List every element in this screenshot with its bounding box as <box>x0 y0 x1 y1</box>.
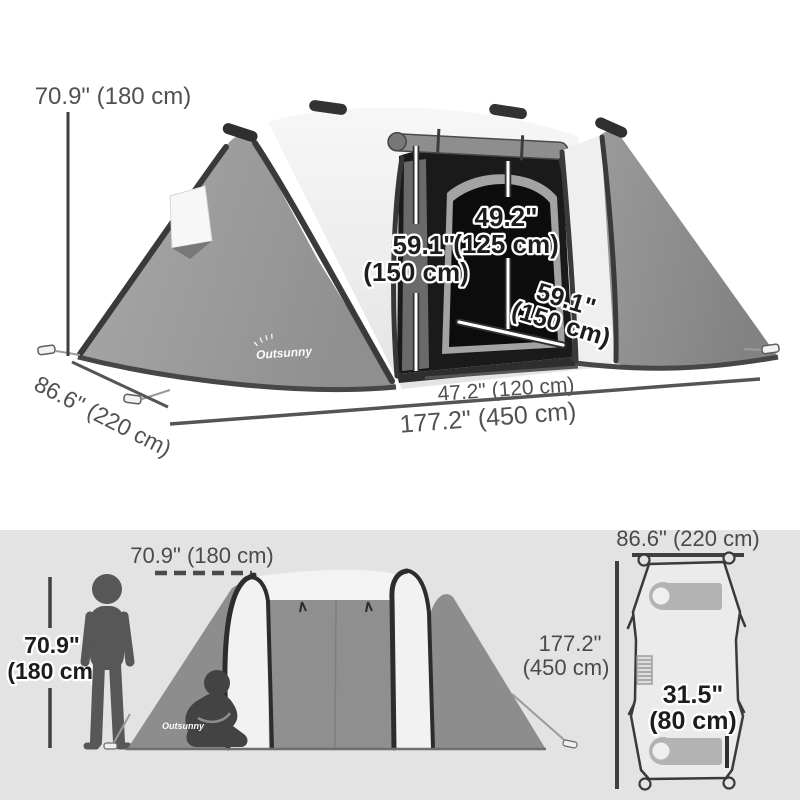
dimension-tent-depth: 86.6" (220 cm) <box>30 362 176 462</box>
room-height-label-cm: (150 cm) <box>363 257 469 287</box>
corner-loop-icon <box>640 779 651 790</box>
vent-flap-icon <box>170 186 212 248</box>
sleeping-bag-icon <box>649 582 722 610</box>
plan-length-label-in: 177.2" <box>539 631 602 656</box>
plan-width-label: 86.6" (220 cm) <box>616 526 760 551</box>
plan-length-label-cm: (450 cm) <box>523 655 610 680</box>
corner-loop-icon <box>724 553 735 564</box>
tent-depth-label: 86.6" (220 cm) <box>30 370 176 461</box>
person-height-label-in: 70.9" <box>24 632 80 658</box>
tent-height-label: 70.9" (180 cm) <box>35 83 192 110</box>
ridge-height-label: 70.9" (180 cm) <box>130 543 274 568</box>
outsunny-logo-small: Outsunny <box>162 721 205 731</box>
diagram-svg: Outsunny 70.9" (180 cm) 59.1" (150 cm) <box>0 0 800 800</box>
room-height-label-in: 59.1" <box>393 230 456 260</box>
guy-rope <box>744 349 764 350</box>
side-center-seam <box>335 601 336 748</box>
door-height-label-cm: (125 cm) <box>453 229 559 259</box>
perspective-view: Outsunny 70.9" (180 cm) 59.1" (150 cm) <box>30 83 779 462</box>
corner-loop-icon <box>639 555 650 566</box>
door-mat-icon <box>637 656 652 684</box>
stake-icon <box>762 344 780 354</box>
right-dome-fabric <box>601 131 778 369</box>
stake-icon <box>104 743 117 749</box>
inner-width-label-in: 31.5" <box>663 681 724 709</box>
door-height-label-in: 49.2" <box>475 202 538 232</box>
stake-icon <box>38 345 56 355</box>
inner-width-label-cm: (80 cm) <box>649 707 737 735</box>
side-center-section <box>268 600 398 748</box>
sleeping-bag-icon <box>649 737 722 765</box>
corner-loop-icon <box>724 778 735 789</box>
stake-icon <box>124 394 142 404</box>
product-dimension-diagram: Outsunny 70.9" (180 cm) 59.1" (150 cm) <box>0 0 800 800</box>
